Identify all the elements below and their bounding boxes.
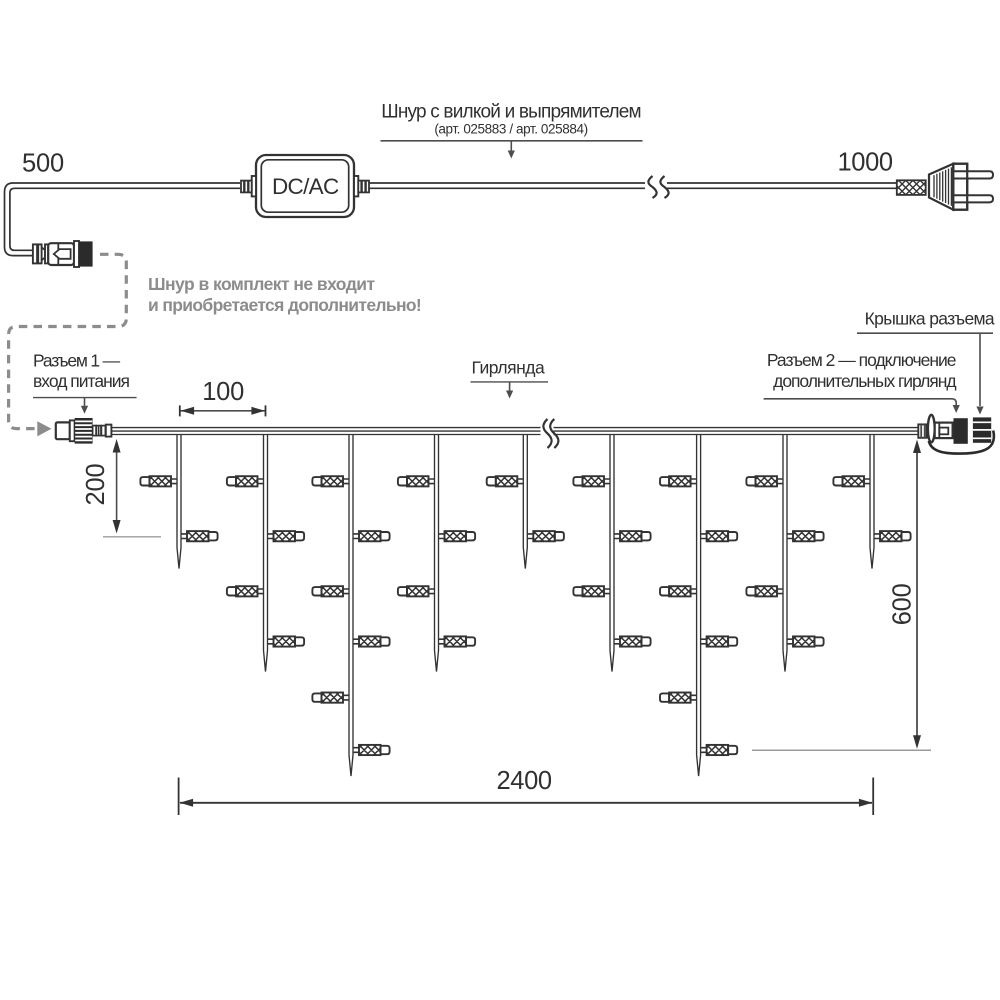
svg-text:и приобретается дополнительно!: и приобретается дополнительно! [148,295,421,315]
svg-text:Шнур в комплект не входит: Шнур в комплект не входит [148,274,375,294]
svg-text:1000: 1000 [838,148,893,176]
svg-text:Разъем 2 — подключение: Разъем 2 — подключение [767,350,956,370]
svg-text:2400: 2400 [497,767,552,795]
svg-text:Шнур с вилкой и выпрямителем: Шнур с вилкой и выпрямителем [381,102,641,123]
svg-text:(арт. 025883 / арт. 025884): (арт. 025883 / арт. 025884) [434,122,587,137]
svg-text:Разъем 1 —: Разъем 1 — [33,351,121,371]
svg-text:вход питания: вход питания [33,371,130,391]
svg-text:200: 200 [82,464,110,506]
svg-text:DC/AC: DC/AC [272,174,339,199]
svg-text:600: 600 [889,583,917,625]
svg-text:дополнительных гирлянд: дополнительных гирлянд [773,371,956,391]
svg-text:100: 100 [202,378,244,406]
svg-text:500: 500 [22,149,64,177]
svg-text:Гирлянда: Гирлянда [472,358,545,378]
svg-text:Крышка разъема: Крышка разъема [865,309,995,329]
